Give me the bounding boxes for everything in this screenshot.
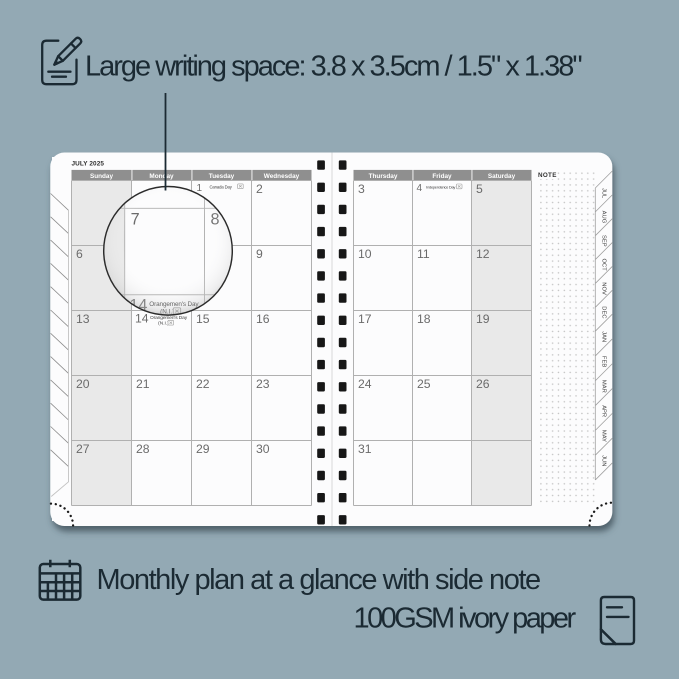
svg-text:JAN: JAN xyxy=(600,331,606,342)
svg-text:3: 3 xyxy=(358,182,365,196)
svg-text:13: 13 xyxy=(76,312,90,326)
svg-text:JULY 2025: JULY 2025 xyxy=(72,160,105,167)
svg-text:22: 22 xyxy=(196,377,210,391)
svg-text:16: 16 xyxy=(256,312,270,326)
svg-text:Tuesday: Tuesday xyxy=(209,173,235,180)
svg-text:21: 21 xyxy=(136,377,150,391)
svg-text:29: 29 xyxy=(196,442,210,456)
svg-text:6: 6 xyxy=(76,247,83,261)
svg-text:23: 23 xyxy=(256,377,270,391)
svg-text:14: 14 xyxy=(135,312,149,326)
svg-text:MAR: MAR xyxy=(600,380,606,393)
svg-text:18: 18 xyxy=(417,312,431,326)
svg-text:25: 25 xyxy=(417,377,431,391)
svg-text:12: 12 xyxy=(476,247,490,261)
svg-text:JUL: JUL xyxy=(600,188,606,199)
svg-text:NOTE: NOTE xyxy=(538,172,557,179)
svg-text:4: 4 xyxy=(417,183,423,194)
svg-text:Monday: Monday xyxy=(149,173,174,180)
svg-text:Thursday: Thursday xyxy=(369,173,398,180)
svg-text:1: 1 xyxy=(197,183,203,194)
svg-text:(N.I.): (N.I.) xyxy=(158,321,169,327)
svg-text:9: 9 xyxy=(256,247,263,261)
svg-text:FEB: FEB xyxy=(600,356,606,367)
svg-text:DEC: DEC xyxy=(600,306,606,318)
svg-text:OCT: OCT xyxy=(600,259,606,272)
svg-text:Monthly plan at a glance with: Monthly plan at a glance with side note xyxy=(97,564,541,596)
svg-text:10: 10 xyxy=(358,247,372,261)
svg-text:11: 11 xyxy=(417,247,430,261)
svg-text:100GSM ivory paper: 100GSM ivory paper xyxy=(354,603,577,635)
svg-text:Friday: Friday xyxy=(432,173,452,180)
svg-text:30: 30 xyxy=(256,442,270,456)
svg-text:SEP: SEP xyxy=(600,235,606,247)
svg-text:Sunday: Sunday xyxy=(90,173,114,180)
svg-text:17: 17 xyxy=(358,312,372,326)
svg-text:Independence Day: Independence Day xyxy=(426,185,455,190)
svg-text:Saturday: Saturday xyxy=(488,173,516,180)
svg-text:27: 27 xyxy=(76,442,90,456)
svg-text:Canada Day: Canada Day xyxy=(210,185,233,190)
svg-text:20: 20 xyxy=(76,377,90,391)
svg-text:31: 31 xyxy=(358,442,372,456)
svg-text:APR: APR xyxy=(600,405,606,417)
svg-text:24: 24 xyxy=(358,377,372,391)
svg-text:19: 19 xyxy=(476,312,490,326)
svg-text:2: 2 xyxy=(256,182,263,196)
svg-text:Large writing space: 3.8 x 3.5: Large writing space: 3.8 x 3.5cm / 1.5" … xyxy=(85,51,582,83)
svg-text:Wednesday: Wednesday xyxy=(264,173,300,180)
svg-text:MAY: MAY xyxy=(600,430,606,442)
svg-text:15: 15 xyxy=(196,312,210,326)
svg-text:26: 26 xyxy=(476,377,490,391)
svg-text:AUG: AUG xyxy=(600,211,606,224)
svg-text:28: 28 xyxy=(136,442,150,456)
svg-text:5: 5 xyxy=(476,182,483,196)
svg-text:NOV: NOV xyxy=(600,282,606,295)
svg-text:JUN: JUN xyxy=(600,455,606,466)
